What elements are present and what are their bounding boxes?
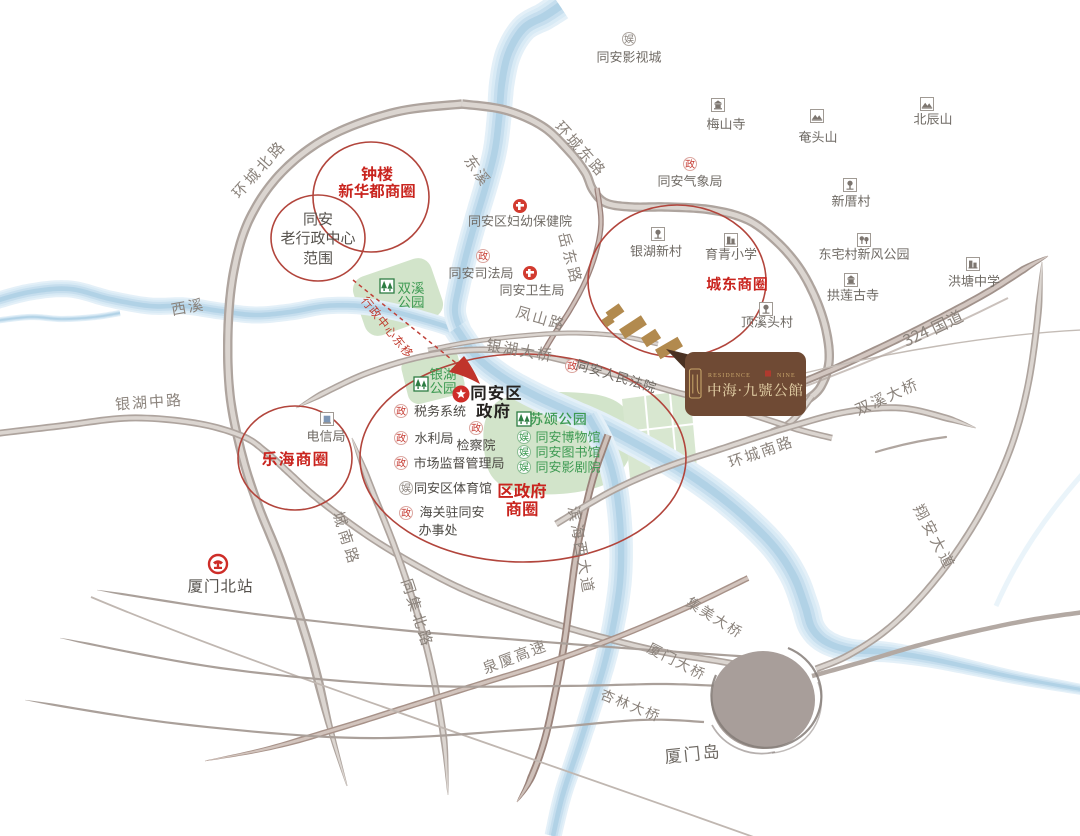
svg-text:RESIDENCE: RESIDENCE: [708, 373, 751, 379]
svg-text:NINE: NINE: [777, 373, 796, 379]
